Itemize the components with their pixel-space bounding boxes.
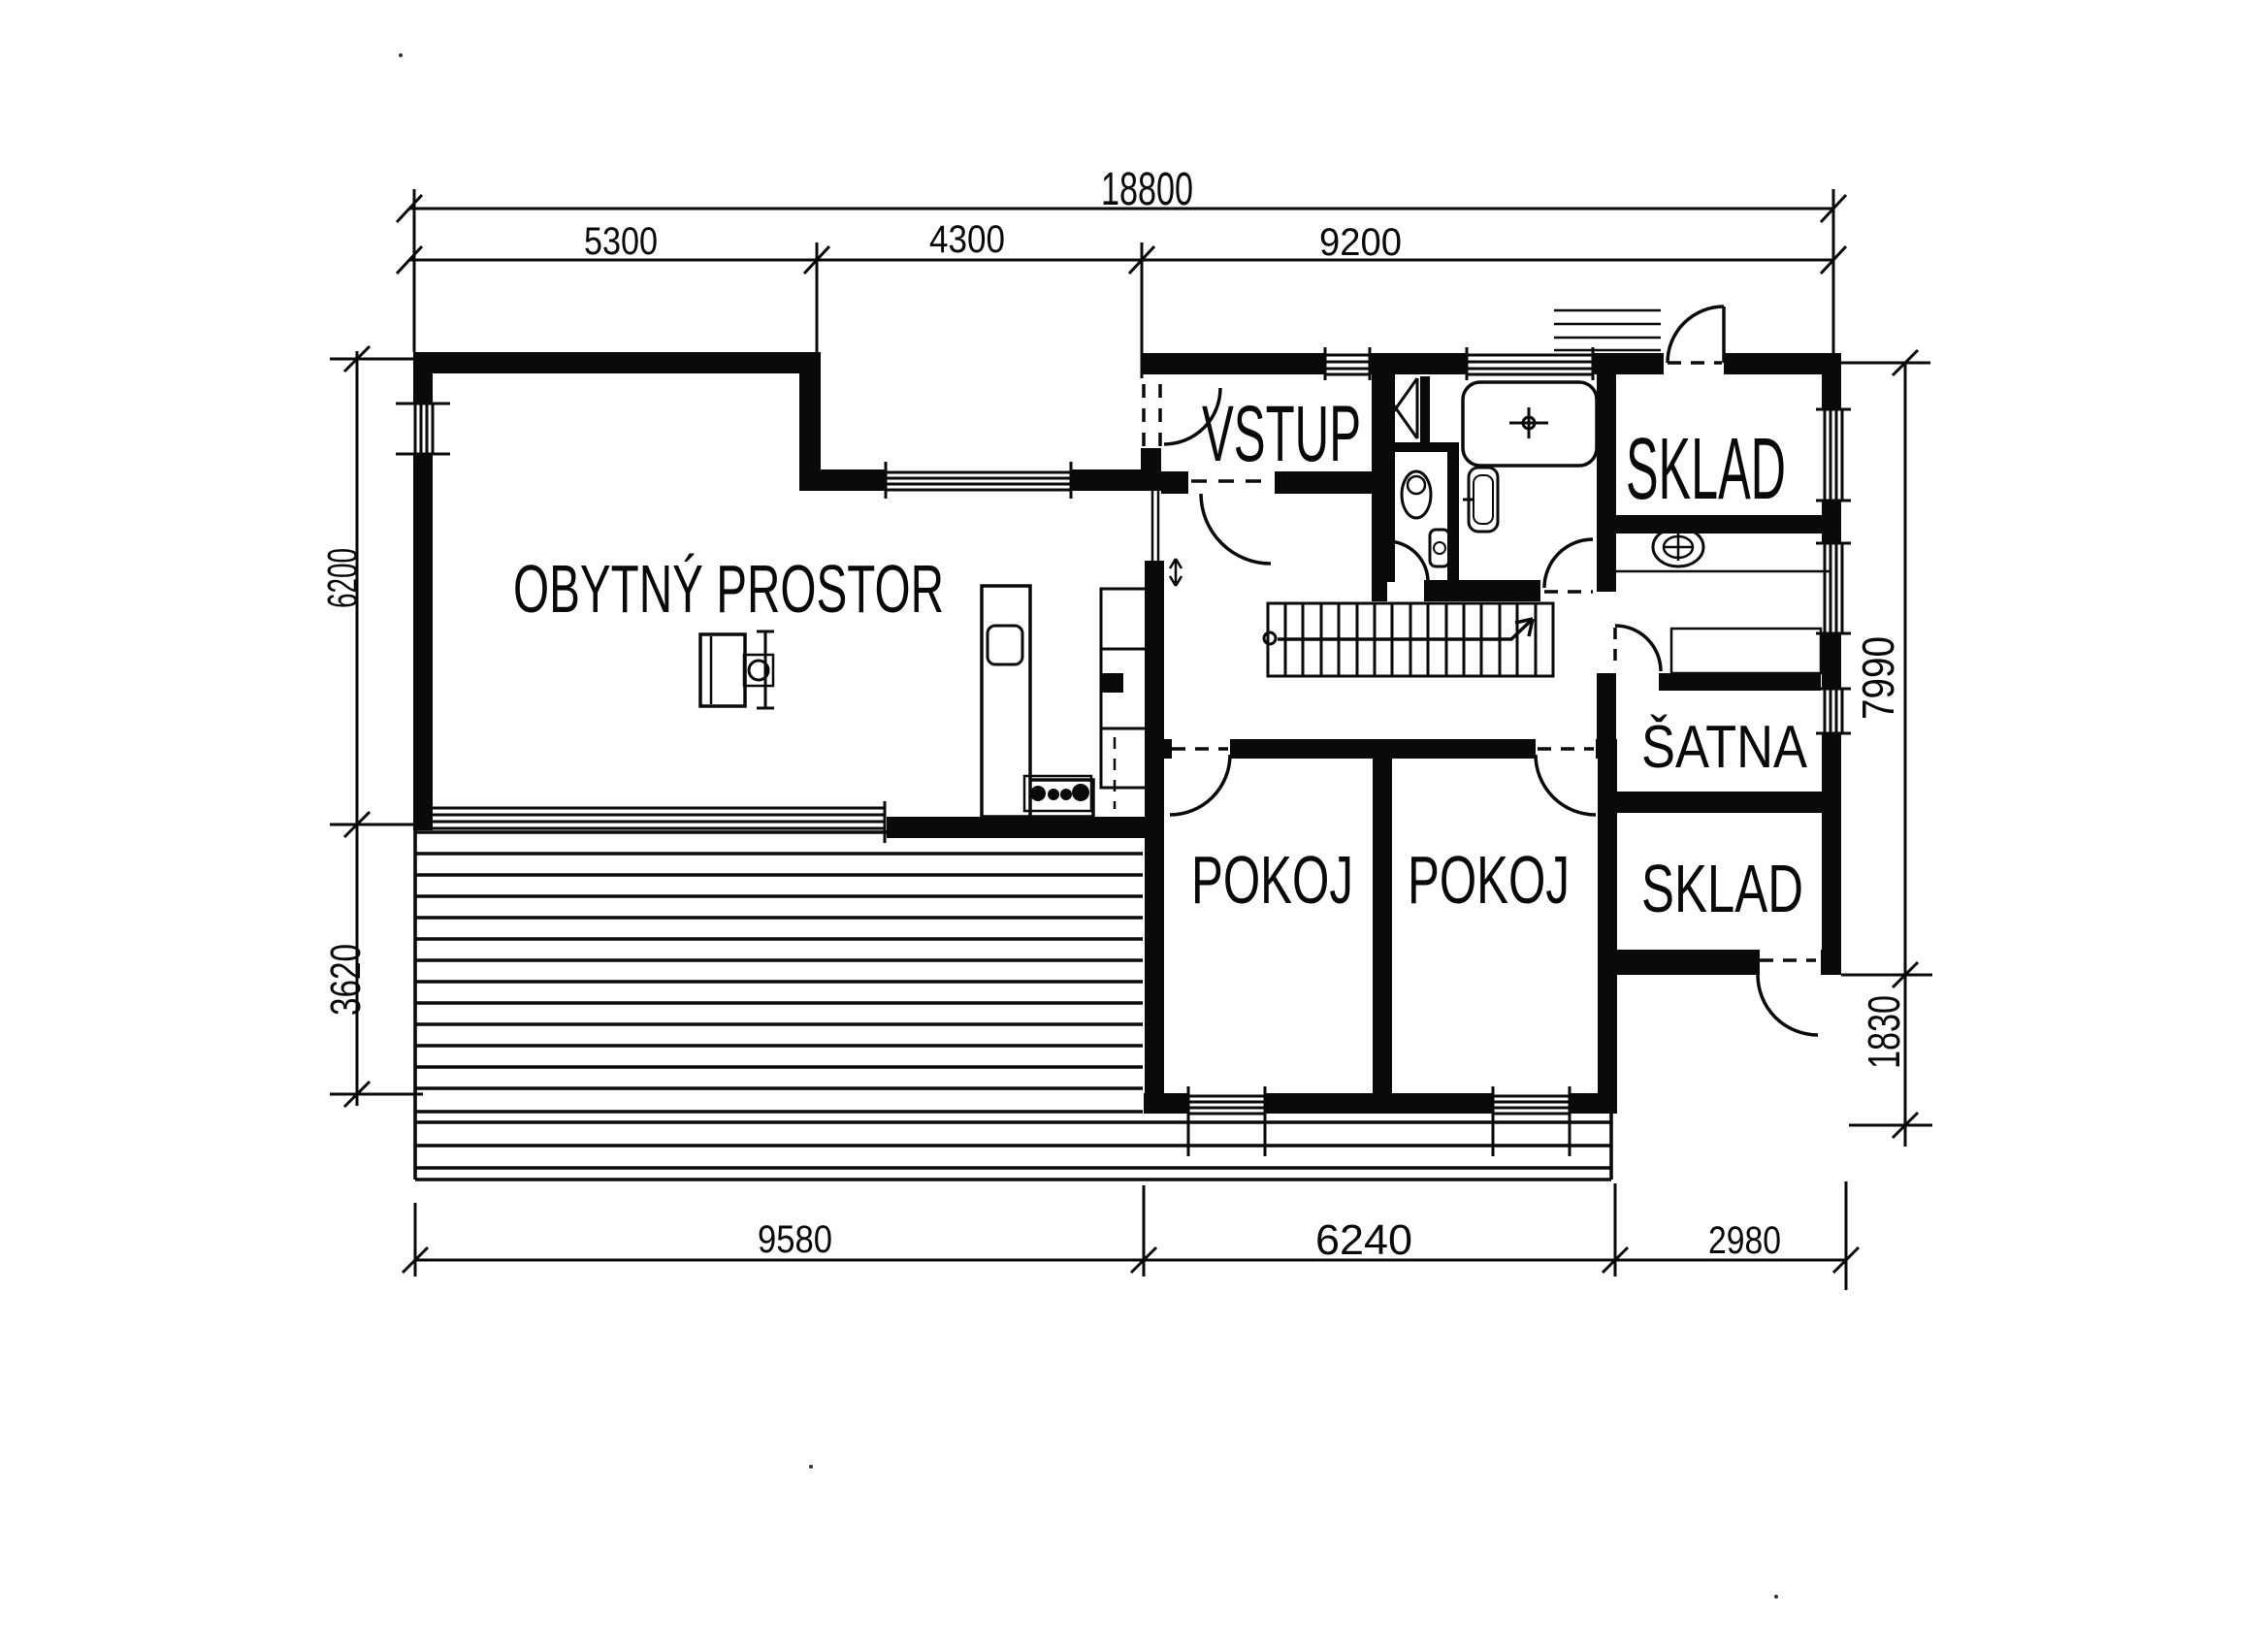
svg-text:3620: 3620 [322,944,370,1016]
svg-text:SKLAD: SKLAD [1626,421,1786,518]
svg-text:POKOJ: POKOJ [1191,842,1353,918]
svg-text:SKLAD: SKLAD [1641,851,1803,926]
svg-text:2980: 2980 [1708,1219,1781,1262]
svg-text:7990: 7990 [1853,636,1903,720]
svg-text:6240: 6240 [1315,1216,1412,1264]
svg-text:VSTUP: VSTUP [1202,390,1361,478]
svg-text:ŠATNA: ŠATNA [1641,714,1808,781]
svg-text:POKOJ: POKOJ [1408,842,1570,918]
svg-text:9580: 9580 [758,1218,832,1261]
svg-text:18800: 18800 [1101,164,1193,215]
svg-text:1830: 1830 [1859,995,1909,1069]
svg-text:5300: 5300 [584,220,658,263]
svg-text:OBYTNÝ PROSTOR: OBYTNÝ PROSTOR [513,551,944,627]
svg-text:4300: 4300 [929,218,1005,261]
svg-text:9200: 9200 [1319,221,1402,264]
svg-text:6200: 6200 [319,548,367,608]
